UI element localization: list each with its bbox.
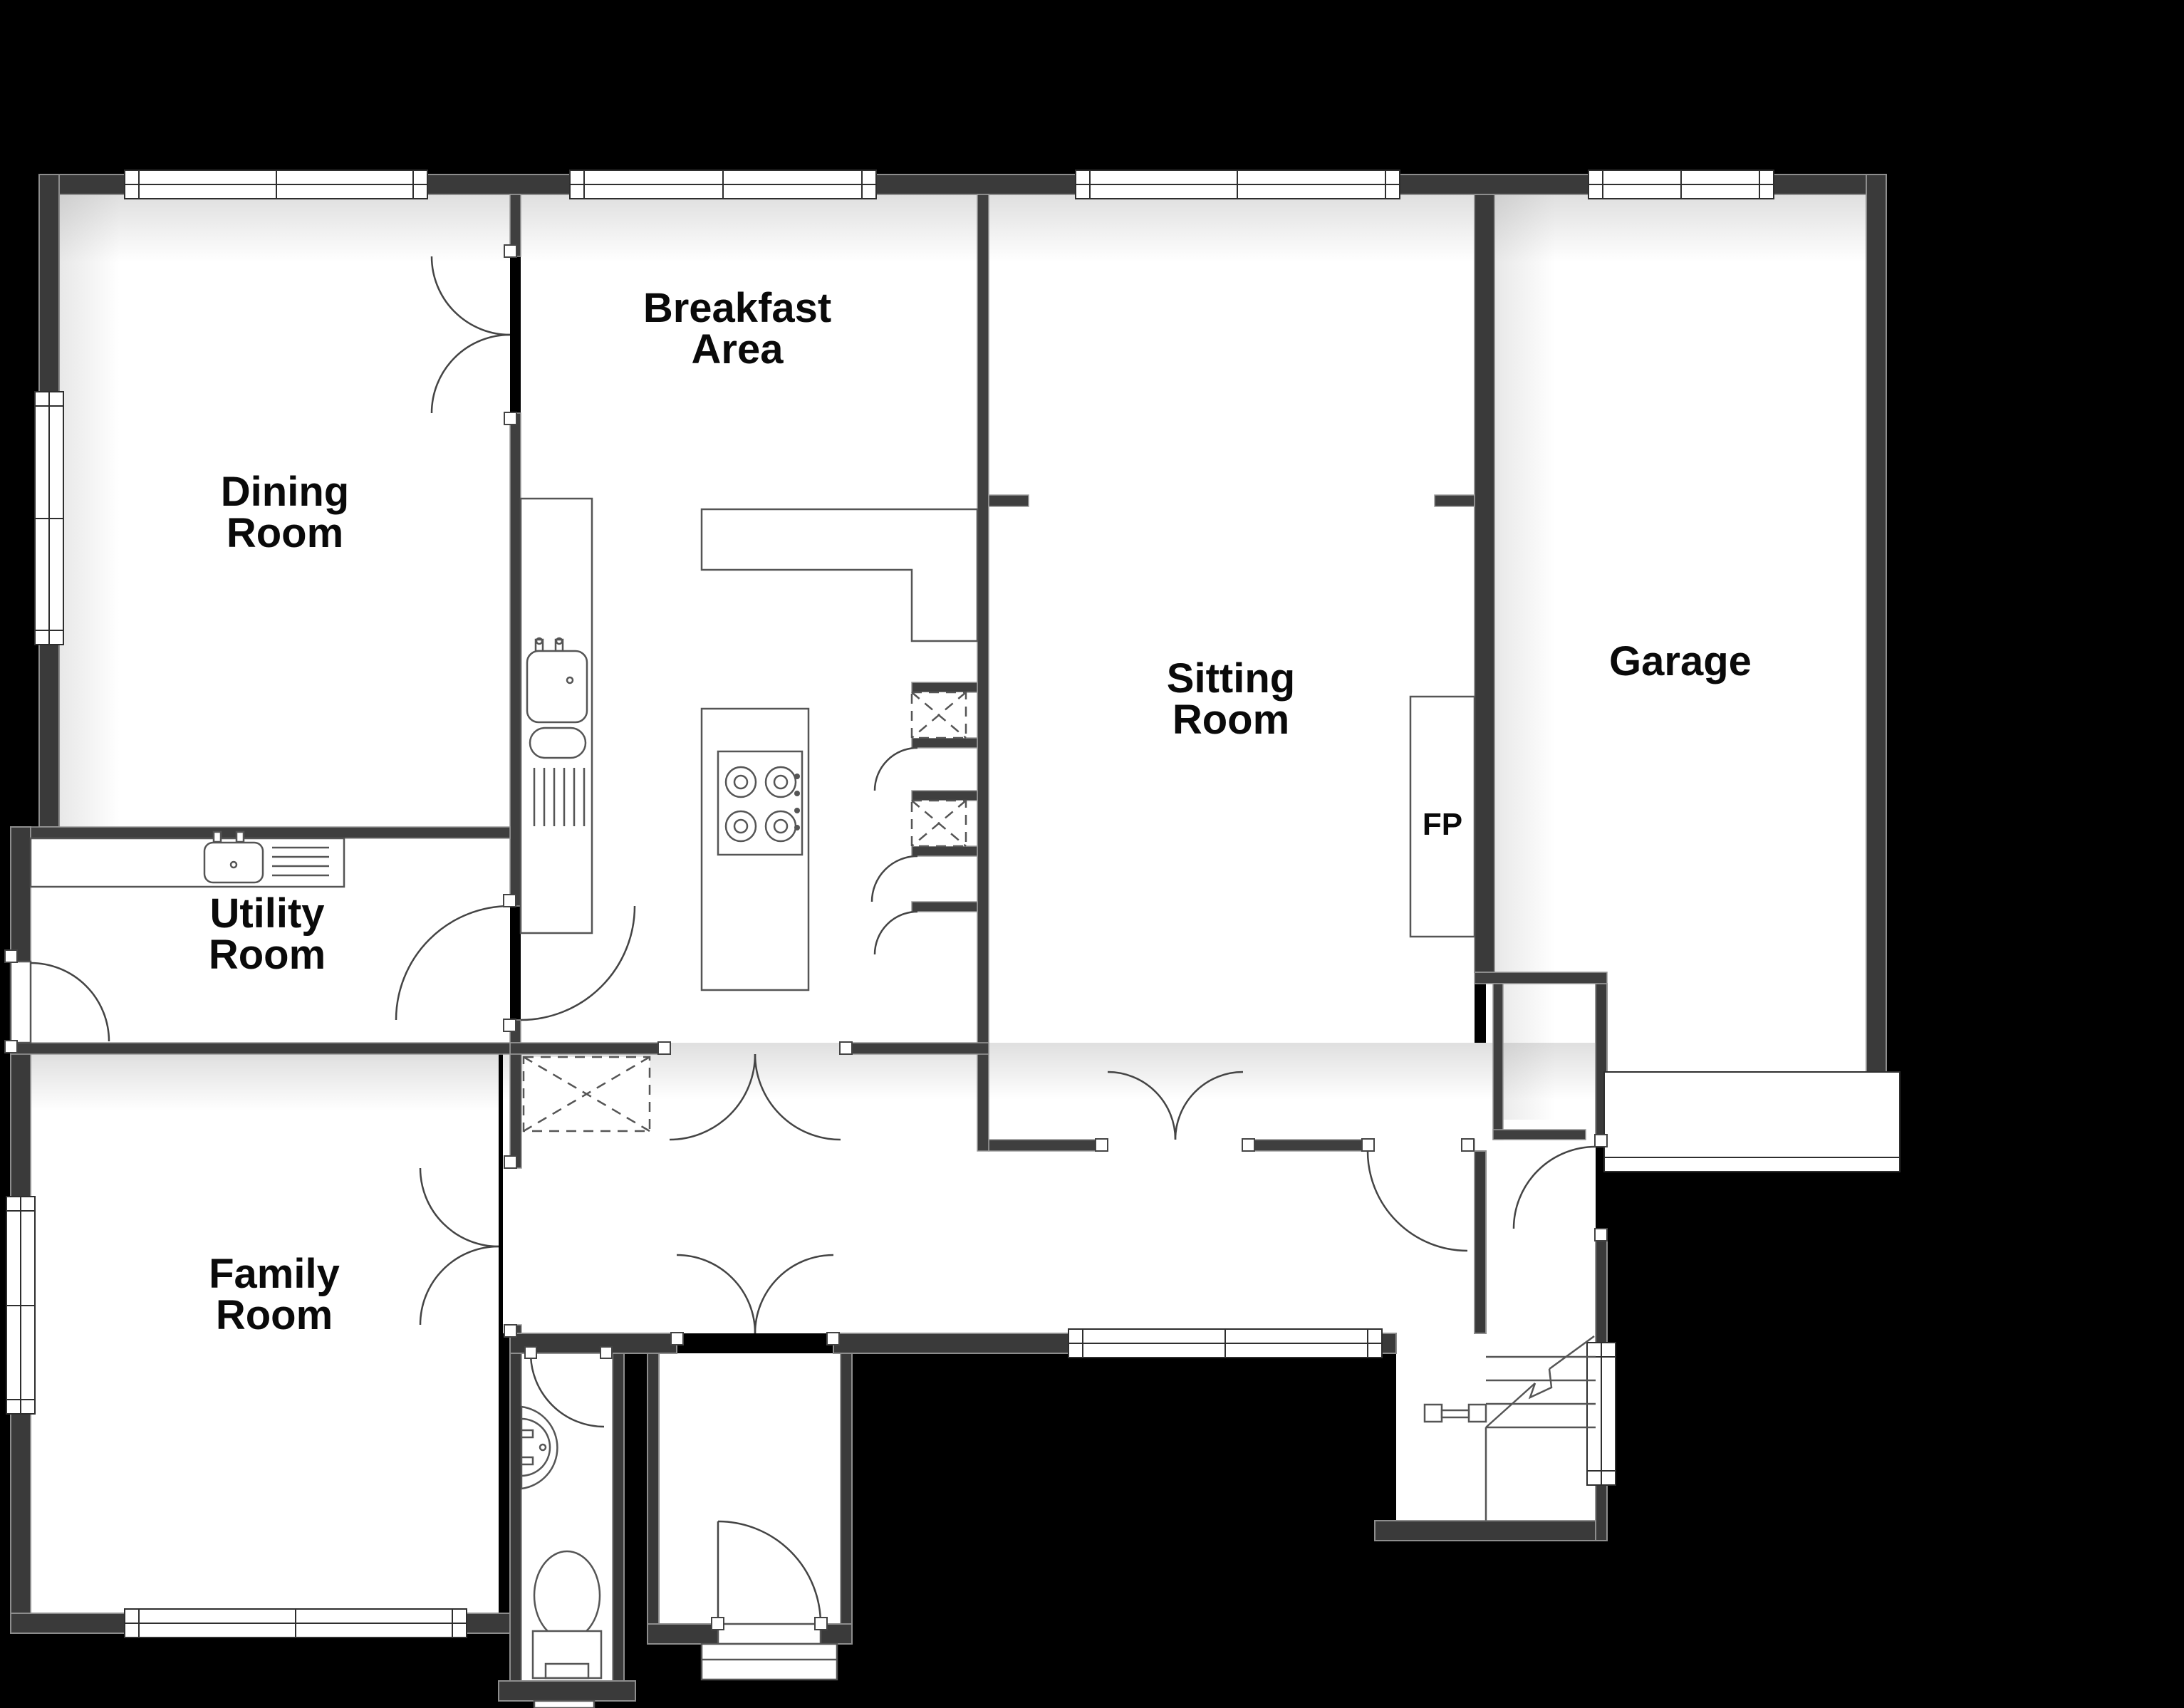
wall-lobby-closet-h <box>1493 1130 1586 1140</box>
room-porch <box>659 1353 841 1624</box>
wall-stairs-bottom <box>1375 1521 1607 1541</box>
label-utility-1: Utility <box>209 890 324 937</box>
wall-stub-1 <box>912 682 977 692</box>
wall-kitchen-east <box>977 194 989 1151</box>
floor-plan-page: Dining Room Breakfast Area Sitting Room … <box>0 0 2184 1708</box>
wall-stub-5 <box>912 902 977 912</box>
window-dining-top <box>125 170 427 199</box>
label-family-2: Room <box>216 1292 333 1338</box>
window-hall-bottom <box>1068 1329 1382 1358</box>
window-sitting-top <box>1076 170 1400 199</box>
window-breakfast-top <box>570 170 876 199</box>
wall-lobby-left <box>1475 1151 1486 1333</box>
wall-right-lower-3 <box>1596 1485 1607 1541</box>
wall-lobby-closet-v <box>1493 984 1503 1140</box>
label-sitting-2: Room <box>1172 697 1289 743</box>
wall-stub-2 <box>912 738 977 748</box>
wall-porch-left <box>648 1353 659 1644</box>
wall-stub-3 <box>912 791 977 801</box>
wall-porch-bottom-left <box>648 1624 718 1644</box>
wall-right-lower-2 <box>1596 1229 1607 1343</box>
wall-wc-left <box>510 1353 521 1681</box>
garage-door <box>1604 1072 1900 1172</box>
utility-counter <box>31 838 344 887</box>
wall-tick-left <box>989 495 1029 506</box>
label-breakfast-2: Area <box>692 326 784 373</box>
wall-stub-4 <box>912 846 977 856</box>
entry-step <box>702 1644 837 1680</box>
wall-wc-bottom <box>499 1681 635 1701</box>
label-fireplace: FP <box>1423 807 1462 842</box>
wall-family-right-1 <box>510 1054 521 1168</box>
wall-garage-right <box>1866 175 1886 1140</box>
wall-porch-right <box>841 1353 852 1644</box>
window-family-left <box>6 1197 35 1414</box>
wall-hall-top-1 <box>510 1043 670 1054</box>
wall-tick-right <box>1435 495 1475 506</box>
label-sitting-1: Sitting <box>1167 655 1295 702</box>
wall-wc-right <box>613 1353 624 1681</box>
label-utility-2: Room <box>209 932 326 978</box>
wall-sitting-bottom-2 <box>1243 1140 1368 1151</box>
window-family-bottom <box>125 1609 467 1637</box>
window-stairs-right <box>1587 1343 1616 1485</box>
wall-utility-family <box>11 1043 510 1054</box>
wall-hall-top-2 <box>841 1043 989 1054</box>
label-family-1: Family <box>209 1251 340 1297</box>
wall-sitting-bottom-1 <box>989 1140 1108 1151</box>
label-garage: Garage <box>1609 638 1752 684</box>
wall-sitting-garage <box>1475 194 1494 972</box>
label-breakfast-1: Breakfast <box>643 285 831 331</box>
label-dining-2: Room <box>227 510 343 556</box>
wall-dining-east-2 <box>510 413 521 906</box>
wall-dining-utility <box>31 827 510 838</box>
window-dining-left <box>35 392 63 645</box>
wall-lobby-top <box>1475 972 1607 984</box>
floor-plan-canvas: Dining Room Breakfast Area Sitting Room … <box>0 0 2184 1708</box>
window-garage-top <box>1588 170 1774 199</box>
label-dining-1: Dining <box>221 469 349 515</box>
